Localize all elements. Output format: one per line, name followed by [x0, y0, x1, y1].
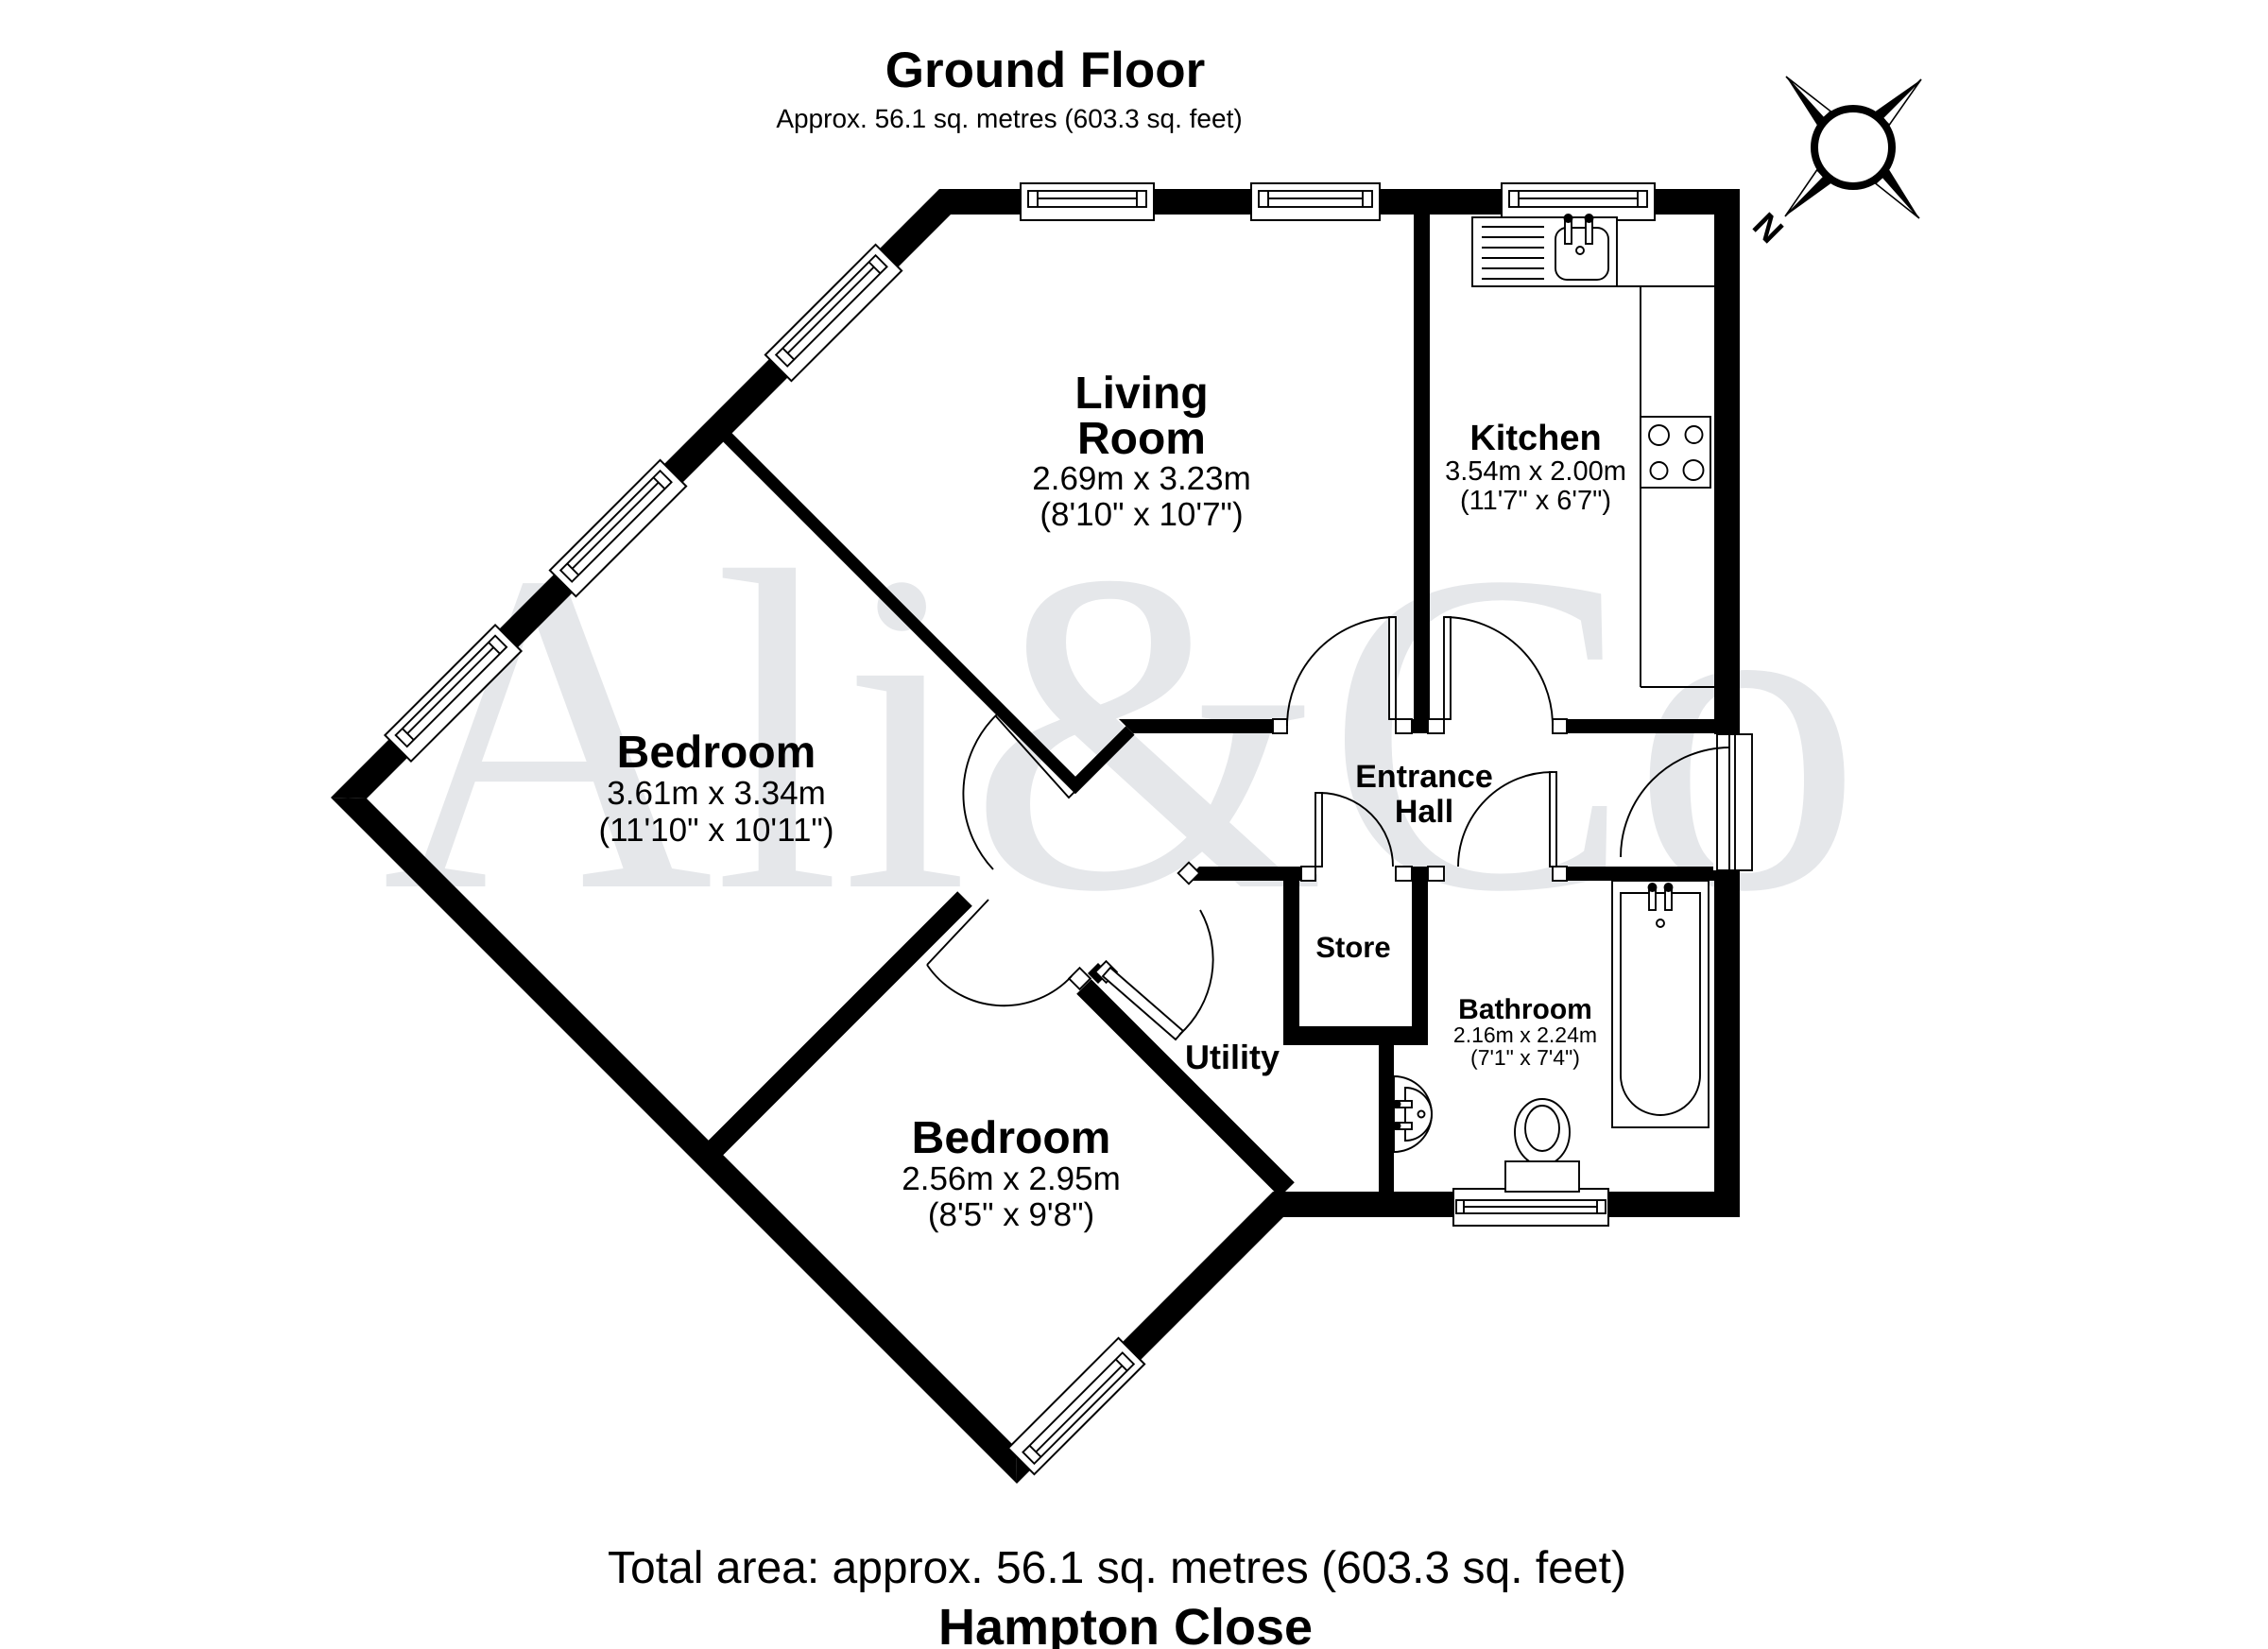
- svg-text:Utility: Utility: [1185, 1038, 1280, 1076]
- svg-text:Living: Living: [1074, 369, 1208, 419]
- svg-text:Kitchen: Kitchen: [1469, 419, 1601, 458]
- svg-text:3.54m x 2.00m: 3.54m x 2.00m: [1445, 456, 1626, 487]
- svg-text:N: N: [1745, 205, 1791, 250]
- svg-text:Hampton Close: Hampton Close: [938, 1599, 1313, 1649]
- svg-text:Bedroom: Bedroom: [617, 728, 816, 778]
- svg-text:(11'7" x 6'7"): (11'7" x 6'7"): [1460, 486, 1611, 516]
- svg-text:Ground Floor: Ground Floor: [885, 43, 1206, 98]
- svg-text:(8'10" x 10'7"): (8'10" x 10'7"): [1039, 496, 1243, 533]
- svg-text:Approx. 56.1 sq. metres (603.3: Approx. 56.1 sq. metres (603.3 sq. feet): [776, 104, 1242, 133]
- svg-text:Store: Store: [1315, 931, 1390, 964]
- svg-text:Entrance: Entrance: [1355, 759, 1493, 795]
- svg-text:3.61m x 3.34m: 3.61m x 3.34m: [607, 775, 826, 812]
- svg-text:(8'5" x 9'8"): (8'5" x 9'8"): [928, 1196, 1094, 1233]
- svg-text:(7'1" x 7'4"): (7'1" x 7'4"): [1470, 1045, 1580, 1070]
- svg-text:Room: Room: [1077, 414, 1206, 464]
- svg-text:2.56m x 2.95m: 2.56m x 2.95m: [902, 1160, 1121, 1197]
- svg-text:(11'10" x 10'11"): (11'10" x 10'11"): [599, 812, 834, 849]
- svg-text:Bedroom: Bedroom: [912, 1113, 1111, 1163]
- svg-text:Hall: Hall: [1395, 794, 1453, 830]
- svg-text:Total area: approx. 56.1 sq. m: Total area: approx. 56.1 sq. metres (603…: [608, 1543, 1626, 1593]
- svg-text:2.16m x 2.24m: 2.16m x 2.24m: [1453, 1022, 1597, 1047]
- svg-text:2.69m x 3.23m: 2.69m x 3.23m: [1032, 460, 1251, 497]
- svg-text:Bathroom: Bathroom: [1458, 994, 1592, 1025]
